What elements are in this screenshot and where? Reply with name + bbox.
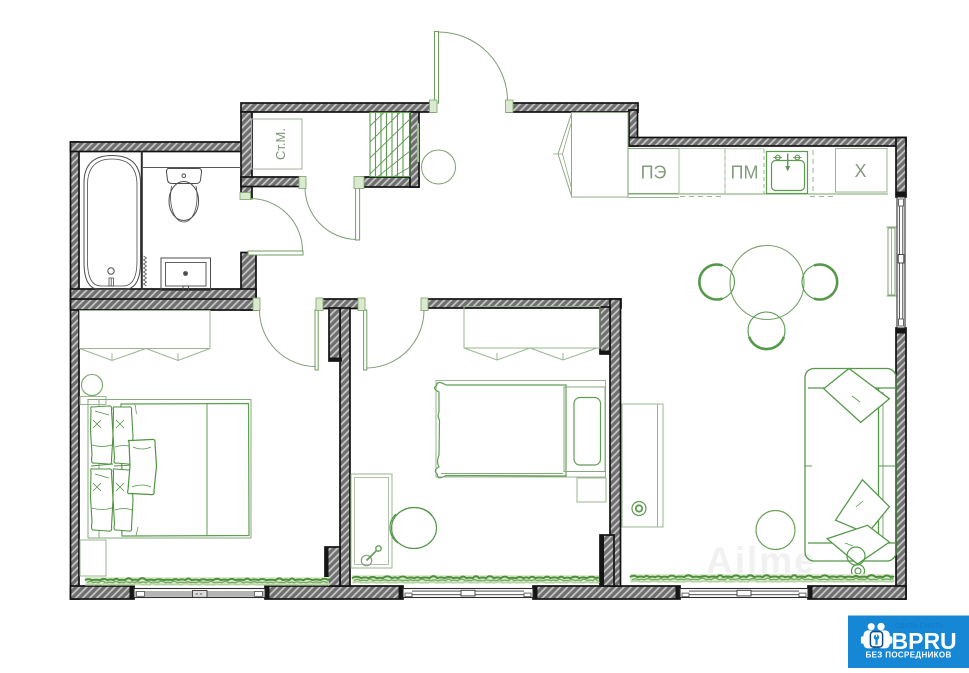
svg-text:ПЭ: ПЭ xyxy=(641,163,667,183)
svg-text:Х: Х xyxy=(854,161,866,181)
svg-text:ПМ: ПМ xyxy=(731,163,759,183)
svg-text:Ст.М.: Ст.М. xyxy=(273,128,288,160)
svg-text:БЕЗ ПОСРЕДНИКОВ: БЕЗ ПОСРЕДНИКОВ xyxy=(866,651,952,660)
